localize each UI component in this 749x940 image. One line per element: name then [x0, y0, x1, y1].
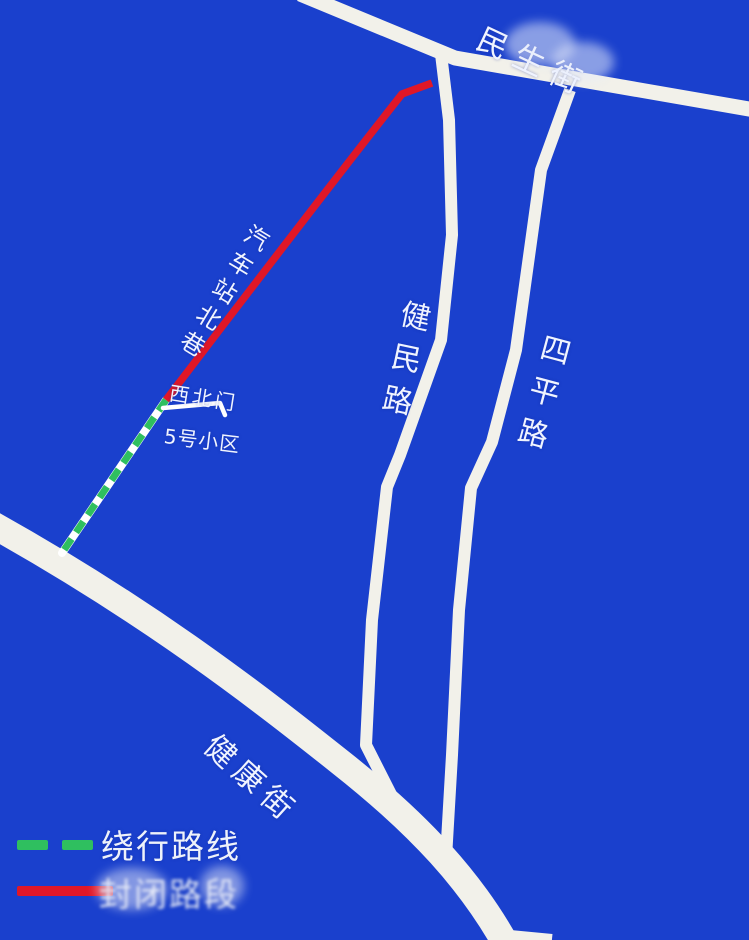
- jiankang-street-road: [0, 522, 508, 940]
- road-map: 民生街 健康街 汽车站北巷 健民路 四平路 西北门 5号小区 绕行路线 封闭路段: [0, 0, 749, 940]
- detour-legend-swatch: [17, 840, 93, 850]
- detour-legend-label: 绕行路线: [101, 820, 241, 868]
- map-canvas: [0, 0, 749, 940]
- jiankang-street-branch-stub: [510, 935, 552, 939]
- detour-dash: [62, 840, 93, 850]
- detour-dash: [17, 840, 48, 850]
- closed-legend-label: 封闭路段: [99, 868, 239, 916]
- jianmin-road: [366, 54, 452, 820]
- detour-route-line: [62, 400, 166, 553]
- siping-road: [446, 90, 570, 858]
